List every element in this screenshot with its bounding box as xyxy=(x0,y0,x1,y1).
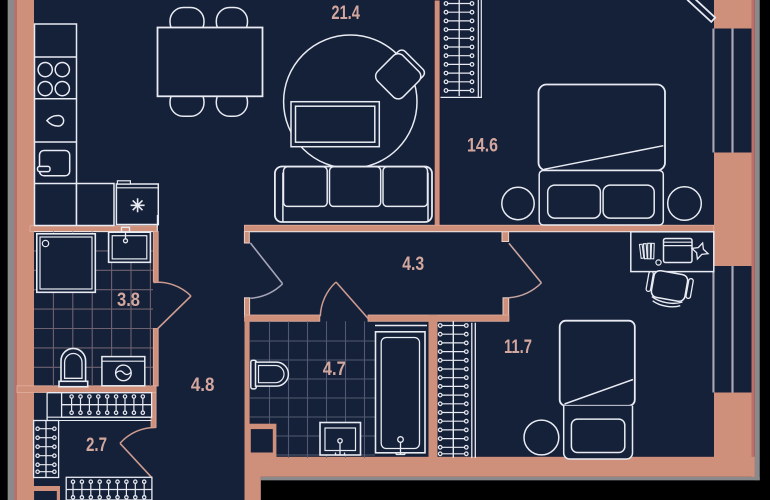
svg-text:3.8: 3.8 xyxy=(117,289,140,311)
svg-text:11.7: 11.7 xyxy=(504,336,532,358)
svg-text:4.7: 4.7 xyxy=(323,358,346,380)
svg-text:14.6: 14.6 xyxy=(467,135,498,157)
svg-text:2.7: 2.7 xyxy=(86,434,107,456)
svg-text:4.8: 4.8 xyxy=(191,374,215,396)
svg-text:4.3: 4.3 xyxy=(402,253,424,275)
svg-text:21.4: 21.4 xyxy=(331,2,360,24)
